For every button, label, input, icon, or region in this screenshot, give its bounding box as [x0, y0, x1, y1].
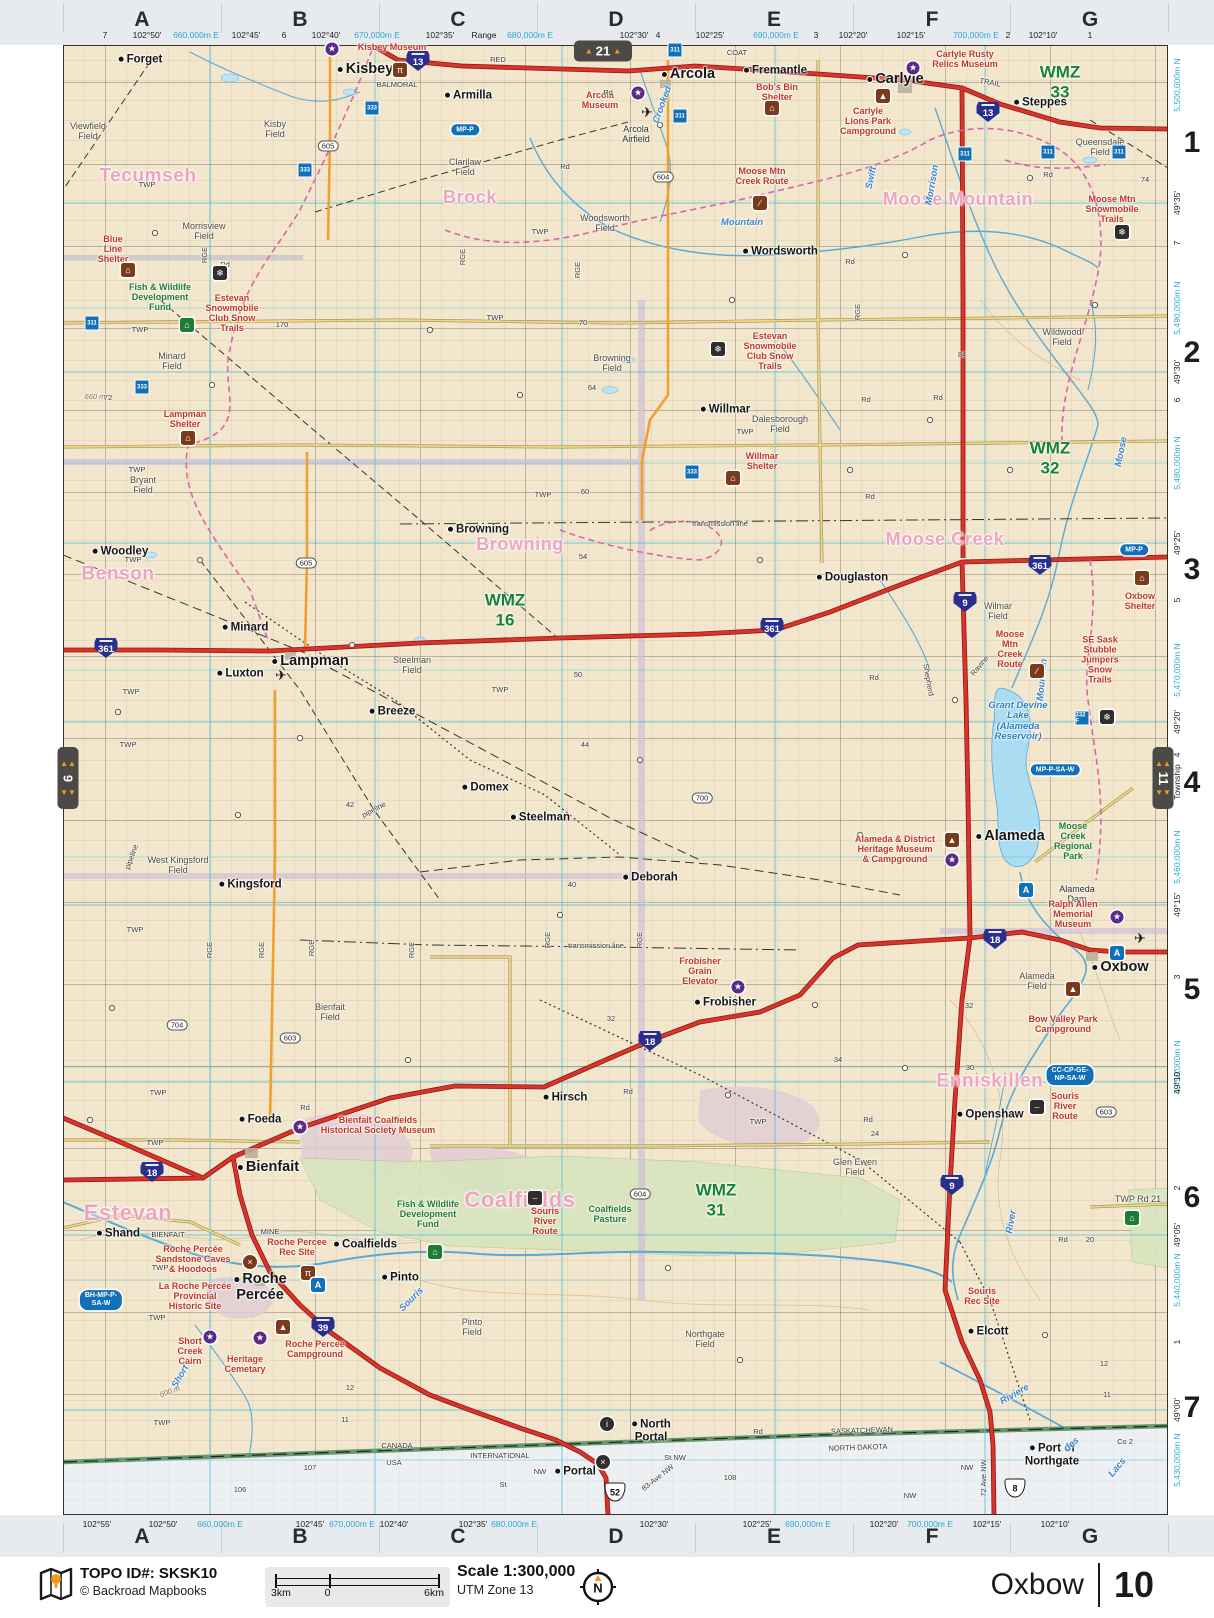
boat-launch-icon: A — [1019, 883, 1033, 897]
trail-marker-badge: 333 — [299, 164, 312, 177]
field-label: Browning Field — [593, 354, 631, 374]
town-label: Minard — [222, 622, 269, 635]
town-label: Steelman — [510, 812, 570, 825]
map-annotation-label: 11 — [1103, 1391, 1111, 1399]
museum-star-icon: ★ — [907, 62, 920, 75]
campground-icon: ▲ — [945, 833, 959, 847]
top-coordinate-label: 680,000m E — [507, 30, 553, 40]
poi-label: Frobisher Grain Elevator — [679, 957, 721, 987]
shelter-icon: ⌂ — [765, 101, 779, 115]
water-label: Short — [170, 1364, 191, 1391]
highway-shield: 9 — [954, 592, 977, 612]
region-label: Browning — [476, 535, 564, 555]
town-dot — [337, 66, 344, 73]
top-coordinate-label: 1 — [1088, 30, 1093, 40]
field-label: Morrisview Field — [182, 222, 225, 242]
right-coordinate-label: 49°30' — [1172, 360, 1182, 384]
wmz-zone-label: WMZ 32 — [1030, 438, 1071, 477]
map-annotation-label: TWP — [152, 1264, 169, 1272]
map-annotation-label: NW — [534, 1468, 547, 1476]
right-coordinate-label: 49°05' — [1172, 1223, 1182, 1247]
town-label: Oxbow — [1091, 960, 1148, 976]
town-label: Fremantle — [743, 65, 807, 78]
map-annotation-label: COAT — [727, 49, 747, 57]
highway-shield: 361 — [1029, 555, 1052, 575]
highway-shield: 52 — [605, 1483, 626, 1502]
highway-shield: 18 — [984, 929, 1007, 949]
poi-label: Willmar Shelter — [746, 452, 778, 472]
town-label: Browning — [447, 524, 509, 537]
town-dot — [742, 248, 749, 255]
bottom-coordinate-label: 102°50' — [149, 1519, 178, 1529]
scale-right-label: 6km — [424, 1587, 444, 1599]
map-annotation-label: 64 — [588, 384, 596, 392]
map-annotation-label: 40 — [568, 881, 576, 889]
topo-id: TOPO ID#: SKSK10 — [80, 1565, 217, 1582]
ski-trail-icon: ∕ — [753, 196, 767, 210]
snowmobile-icon: ❄ — [1115, 225, 1129, 239]
town-label: Bienfait — [237, 1160, 299, 1176]
town-dot — [968, 1328, 975, 1335]
map-annotation-label: Co 2 — [1117, 1438, 1133, 1446]
museum-star-icon: ★ — [326, 43, 339, 56]
museum-star-icon: ★ — [204, 1331, 217, 1344]
region-label: Coalfields — [464, 1188, 575, 1212]
water-label: Souris — [398, 1286, 426, 1314]
shelter-icon: ⌂ — [1135, 571, 1149, 585]
poi-label: Arcola Museum — [582, 91, 619, 111]
highway-shield: 361 — [95, 638, 118, 658]
chevron-icon: ▲▲ — [60, 760, 76, 768]
field-label: Minard Field — [158, 352, 186, 372]
utm-zone: UTM Zone 13 — [457, 1583, 575, 1597]
town-dot — [447, 526, 454, 533]
road-number-badge: 700 — [692, 793, 713, 804]
poi-label: Moose Mtn Creek Route — [735, 167, 788, 187]
highway-shield: 18 — [141, 1162, 164, 1182]
adjacent-page-tab-9[interactable]: ▲▲9▼▼ — [58, 747, 79, 809]
grid-row-label: 2 — [1184, 336, 1201, 370]
bottom-coordinate-label: 102°30' — [640, 1519, 669, 1529]
chevron-icon: ▲▲ — [1155, 760, 1171, 768]
map-annotation-label: BALMORAL — [377, 81, 418, 89]
museum-star-icon: ★ — [946, 854, 959, 867]
road-number-badge: 605 — [296, 558, 317, 569]
town-dot — [510, 814, 517, 821]
poi-label: Moose Mtn Snowmobile Trails — [1085, 195, 1138, 225]
water-label: Morrison — [924, 164, 941, 206]
right-coordinate-label: 5,470,000m N — [1172, 643, 1182, 696]
bottom-coordinate-label: 102°35' — [459, 1519, 488, 1529]
map-annotation-label: INTERNATIONAL — [470, 1452, 529, 1460]
town-dot — [975, 833, 982, 840]
poi-label: La Roche Percée Provincial Historic Site — [159, 1282, 232, 1312]
grid-column-label: G — [1082, 1525, 1098, 1549]
map-annotation-label: CANADA — [381, 1442, 412, 1450]
right-coordinate-label: 5,430,000m N — [1172, 1433, 1182, 1486]
map-annotation-label: Shepherd — [921, 663, 935, 696]
town-dot — [554, 1468, 561, 1475]
map-annotation-label: Rd — [1043, 171, 1053, 179]
top-coordinate-label: 2 — [1006, 30, 1011, 40]
map-annotation-label: Rd — [845, 258, 855, 266]
right-coordinate-label: 5,440,000m N — [1172, 1253, 1182, 1306]
town-dot — [866, 76, 873, 83]
map-annotation-label: Rd — [933, 394, 943, 402]
wmz-zone-label: WMZ 16 — [485, 590, 526, 629]
map-annotation-label: NW — [904, 1492, 917, 1500]
scale-text: Scale 1:300,000 — [457, 1563, 575, 1581]
ski-trail-icon: ∕ — [1030, 664, 1044, 678]
adjacent-page-tab-21[interactable]: ▲21▲ — [574, 41, 632, 62]
right-coordinate-label: 3 — [1172, 975, 1182, 980]
town-dot — [622, 874, 629, 881]
map-annotation-label: RGE — [854, 304, 862, 320]
poi-label: Carlyle Lions Park Campground — [840, 107, 896, 137]
map-annotation-label: Rd — [861, 396, 871, 404]
adjacent-page-tab-11[interactable]: ▲▲11▼▼ — [1153, 747, 1174, 809]
region-label: Moose Mountain — [883, 190, 1033, 210]
poi-label: Roche Percée Sandstone Caves & Hoodoos — [155, 1245, 230, 1275]
region-label: Moose Creek — [886, 530, 1005, 550]
right-coordinate-label: 5,460,000m N — [1172, 830, 1182, 883]
campground-icon: ▲ — [876, 89, 890, 103]
trail-marker-badge: 311 — [86, 317, 99, 330]
footer-bar: TOPO ID#: SKSK10 © Backroad Mapbooks 3km… — [0, 1557, 1214, 1618]
poi-label: Carlyle Rusty Relics Museum — [932, 50, 998, 70]
town-dot — [333, 1241, 340, 1248]
grid-column-label: C — [450, 8, 465, 32]
top-coordinate-label: 102°10' — [1029, 30, 1058, 40]
map-annotation-label: MINE — [261, 1228, 280, 1236]
top-coordinate-label: 102°20' — [839, 30, 868, 40]
field-label: Dalesborough Field — [752, 415, 808, 435]
map-annotation-label: RGE — [636, 932, 644, 948]
highway-shield: 8 — [1005, 1479, 1026, 1498]
map-annotation-label: Rd — [869, 674, 879, 682]
trail-marker-badge: 333 — [136, 381, 149, 394]
highway-shield: 18 — [639, 1031, 662, 1051]
town-label: Portal — [554, 1466, 596, 1479]
town-dot — [233, 1276, 240, 1283]
town-label: Shand — [96, 1228, 140, 1241]
map-annotation-label: 170 — [276, 321, 289, 329]
map-annotation-label: Rd — [863, 1116, 873, 1124]
town-label: Douglaston — [816, 572, 888, 585]
museum-star-icon: ★ — [254, 1332, 267, 1345]
town-label: Alameda — [975, 829, 1044, 845]
map-annotation-label: 83-Ave NW — [640, 1463, 675, 1493]
water-label: Crooked — [652, 85, 675, 125]
poi-label: Heritage Cemetary — [224, 1355, 265, 1375]
water-label: River — [1005, 1209, 1019, 1234]
town-label: Woodley — [92, 546, 149, 559]
top-coordinate-label: 102°15' — [897, 30, 926, 40]
town-label: Steppes — [1013, 97, 1067, 110]
map-annotation-label: TWP — [132, 326, 149, 334]
right-coordinate-label: 6 — [1172, 398, 1182, 403]
grid-column-label: A — [134, 1525, 149, 1549]
town-dot — [369, 708, 376, 715]
town-label: Willmar — [700, 404, 750, 417]
map-annotation-label: transmission line — [692, 520, 748, 528]
town-dot — [222, 624, 229, 631]
map-annotation-label: 84 — [958, 351, 966, 359]
road-number-badge: 603 — [1096, 1107, 1117, 1118]
top-coordinate-label: 690,000m E — [753, 30, 799, 40]
top-coordinate-label: 102°45' — [232, 30, 261, 40]
water-label: des — [1062, 1436, 1081, 1455]
poi-label: Estevan Snowmobile Club Snow Trails — [205, 294, 258, 334]
map-annotation-label: USA — [386, 1459, 401, 1467]
field-label: Wilmar Field — [984, 602, 1012, 622]
map-annotation-label: TWP — [535, 491, 552, 499]
right-coordinate-label: 5,490,000m N — [1172, 281, 1182, 334]
town-label: Hirsch — [543, 1092, 588, 1105]
canoe-route-icon: ⌣ — [1030, 1100, 1044, 1114]
trail-marker-badge: 333 — [366, 102, 379, 115]
town-dot — [461, 784, 468, 791]
map-annotation-label: Rd — [300, 1104, 310, 1112]
bottom-coordinate-label: 680,000m E — [491, 1519, 537, 1529]
museum-star-icon: ★ — [632, 87, 645, 100]
airfield-icon: ✈ — [640, 105, 654, 119]
campground-icon: ▲ — [276, 1320, 290, 1334]
top-coordinate-label: 3 — [814, 30, 819, 40]
map-annotation-label: 70 — [579, 319, 587, 327]
poi-label: Oxbow Shelter — [1125, 592, 1156, 612]
right-coordinate-label: 2 — [1172, 1186, 1182, 1191]
top-coordinate-label: 670,000m E — [354, 30, 400, 40]
map-annotation-label: TWP — [149, 1314, 166, 1322]
bottom-coordinate-label: 102°55' — [83, 1519, 112, 1529]
road-number-badge: 605 — [318, 141, 339, 152]
right-coordinate-label: 7 — [1172, 241, 1182, 246]
town-dot — [816, 574, 823, 581]
right-coordinate-label: 49°35' — [1172, 191, 1182, 215]
mine-icon: × — [243, 1255, 257, 1269]
road-number-badge: 604 — [630, 1189, 651, 1200]
map-annotation-label: 108 — [724, 1474, 737, 1482]
town-label: Elcott — [968, 1326, 1009, 1339]
map-annotation-label: TWP — [147, 1139, 164, 1147]
map-annotation-label: RGE — [459, 249, 467, 265]
map-annotation-label: 74 — [1141, 176, 1149, 184]
map-annotation-label: NORTH DAKOTA — [828, 1443, 887, 1453]
field-label: Bienfait Field — [315, 1003, 345, 1023]
right-coordinate-label: Township — [1172, 764, 1182, 799]
border-crossing-icon: × — [596, 1455, 610, 1469]
wildlife-area-icon: ⌂ — [1125, 1211, 1139, 1225]
trail-marker-badge: 311 — [674, 110, 687, 123]
top-coordinate-label: Range — [471, 30, 496, 40]
top-coordinate-label: 4 — [656, 30, 661, 40]
town-dot — [1013, 99, 1020, 106]
town-label: Frobisher — [694, 997, 756, 1010]
shelter-icon: ⌂ — [181, 431, 195, 445]
trail-marker-badge: 311 — [1113, 146, 1126, 159]
map-annotation-label: TWP — [127, 926, 144, 934]
airfield-icon: ✈ — [274, 668, 288, 682]
map-annotation-label: pipeline — [361, 800, 388, 819]
town-dot — [239, 1116, 246, 1123]
town-label: Armilla — [444, 90, 492, 103]
road-number-badge: 704 — [167, 1020, 188, 1031]
map-annotation-label: 600 m — [159, 1385, 181, 1400]
poi-label: Short Creek Cairn — [177, 1337, 202, 1367]
poi-label: Souris Rec Site — [964, 1287, 1000, 1307]
grid-column-label: D — [608, 1525, 623, 1549]
grid-column-label: A — [134, 8, 149, 32]
town-dot — [1091, 964, 1098, 971]
bottom-coordinate-label: 660,000m E — [197, 1519, 243, 1529]
region-label: Estevan — [84, 1201, 173, 1225]
map-annotation-label: TWP — [123, 688, 140, 696]
highway-shield: 361 — [761, 618, 784, 638]
region-label: Benson — [81, 565, 154, 586]
trail-code-badge: MP-P-SA-W — [1031, 764, 1080, 775]
scale-left-label: 3km — [271, 1587, 291, 1599]
water-label: Swift — [865, 166, 880, 190]
highway-shield: 9 — [941, 1175, 964, 1195]
grid-row-label: 5 — [1184, 973, 1201, 1007]
region-label: Tecumseh — [99, 167, 196, 188]
region-label: Brock — [443, 188, 497, 208]
bottom-coordinate-label: 690,000m E — [785, 1519, 831, 1529]
shelter-icon: ⌂ — [121, 263, 135, 277]
info-icon: i — [600, 1417, 614, 1431]
boat-launch-icon: A — [1110, 946, 1124, 960]
field-label: Kisby Field — [264, 120, 286, 140]
map-annotation-label: Rd — [623, 1088, 633, 1096]
poi-label: Souris River Route — [1051, 1092, 1079, 1122]
bottom-coordinate-label: 670,000m E — [329, 1519, 375, 1529]
town-dot — [96, 1230, 103, 1237]
map-annotation-label: 20 — [1086, 1236, 1094, 1244]
town-label: Luxton — [216, 668, 263, 681]
map-annotation-label: RGE — [258, 942, 266, 958]
map-annotation-label: 11 — [341, 1416, 349, 1424]
town-label: Kingsford — [218, 879, 281, 892]
bottom-coordinate-label: 700,000m E — [907, 1519, 953, 1529]
museum-star-icon: ★ — [1111, 911, 1124, 924]
map-annotation-label: NW — [961, 1464, 974, 1472]
field-label: West Kingsford Field — [148, 856, 209, 876]
map-annotation-label: 44 — [581, 741, 589, 749]
top-coordinate-label: 102°40' — [312, 30, 341, 40]
map-annotation-label: 106 — [234, 1486, 247, 1494]
top-coordinate-label: 102°30' — [620, 30, 649, 40]
trail-marker-badge: 332 F — [1076, 712, 1089, 725]
canoe-route-icon: ⌣ — [528, 1191, 542, 1205]
chevron-icon: ▼▼ — [60, 789, 76, 797]
map-annotation-label: St — [499, 1481, 506, 1489]
map-annotation-label: 24 — [871, 1130, 879, 1138]
boat-launch-icon: A — [311, 1278, 325, 1292]
grid-column-label: B — [292, 8, 307, 32]
field-label: Steelman Field — [393, 656, 431, 676]
field-label: Bryant Field — [130, 476, 156, 496]
map-annotation-label: RGE — [308, 940, 316, 956]
town-label: Breeze — [369, 706, 416, 719]
museum-star-icon: ★ — [732, 981, 745, 994]
road-number-badge: 604 — [653, 172, 674, 183]
map-annotation-label: 660 m — [85, 393, 106, 401]
right-coordinate-label: 5,500,000m N — [1172, 58, 1182, 111]
museum-star-icon: ★ — [294, 1121, 307, 1134]
poi-label: Blue Line Shelter — [98, 235, 129, 265]
map-annotation-label: Rd — [865, 493, 875, 501]
town-label: Roche Percée — [233, 1272, 286, 1304]
map-annotation-label: TRAIL — [979, 77, 1001, 89]
water-label: Moose — [1114, 436, 1130, 468]
poi-label: Coalfields Pasture — [588, 1205, 631, 1225]
map-annotation-label: 60 — [581, 488, 589, 496]
map-annotation-label: TWP — [125, 556, 142, 564]
chevron-icon: ▼▼ — [1155, 789, 1171, 797]
grid-row-label: 4 — [1184, 766, 1201, 800]
grid-row-label: 6 — [1184, 1181, 1201, 1215]
copyright: © Backroad Mapbooks — [80, 1584, 217, 1598]
map-annotation-label: 30 — [966, 1064, 974, 1072]
map-annotation-label: Ravine — [969, 654, 990, 677]
grid-column-label: E — [767, 8, 781, 32]
snowmobile-icon: ❄ — [1100, 710, 1114, 724]
town-label: Forget — [118, 54, 163, 67]
map-annotation-label: TWP — [737, 428, 754, 436]
grid-row-label: 1 — [1184, 126, 1201, 160]
page-number: 10 — [1114, 1564, 1154, 1606]
map-annotation-label: RGE — [574, 262, 582, 278]
trail-marker-badge: 311 — [669, 44, 682, 57]
scale-bar: 3km 0 6km — [265, 1567, 450, 1607]
grid-column-label: F — [926, 8, 939, 32]
grid-column-label: G — [1082, 8, 1098, 32]
page-title: Oxbow — [991, 1568, 1084, 1602]
mapbook-logo-icon — [38, 1565, 74, 1605]
north-compass-icon: N — [578, 1565, 618, 1605]
poi-label: SE Sask Stubble Jumpers Snow Trails — [1081, 635, 1119, 684]
map-annotation-label: TWP — [492, 686, 509, 694]
map-annotation-label: 72 Ave NW — [980, 1459, 988, 1496]
map-annotation-label: 54 — [579, 553, 587, 561]
town-label: North Portal — [631, 1418, 671, 1443]
town-dot — [631, 1421, 638, 1428]
map-annotation-label: 12 — [346, 1384, 354, 1392]
town-dot — [543, 1094, 550, 1101]
town-label: Pinto — [381, 1272, 419, 1285]
town-dot — [444, 92, 451, 99]
trail-marker-badge: 311 — [959, 148, 972, 161]
wmz-zone-label: WMZ 33 — [1040, 62, 1081, 101]
map-annotation-label: 107 — [304, 1464, 317, 1472]
town-label: Kisbey — [337, 62, 394, 78]
bottom-coordinate-label: 102°10' — [1041, 1519, 1070, 1529]
town-dot — [381, 1274, 388, 1281]
snowmobile-icon: ❄ — [213, 266, 227, 280]
town-dot — [661, 71, 668, 78]
poi-label: Ralph Allen Memorial Museum — [1048, 900, 1097, 930]
poi-label: Roche Percee Rec Site — [267, 1238, 327, 1258]
town-dot — [237, 1164, 244, 1171]
town-label: Foeda — [239, 1114, 282, 1127]
field-label: Northgate Field — [685, 1330, 725, 1350]
picnic-icon: π — [393, 63, 407, 77]
map-annotation-label: Rd — [753, 1428, 763, 1436]
town-dot — [92, 548, 99, 555]
map-annotation-label: Rd — [603, 89, 613, 97]
airfield-icon: ✈ — [1133, 931, 1147, 945]
